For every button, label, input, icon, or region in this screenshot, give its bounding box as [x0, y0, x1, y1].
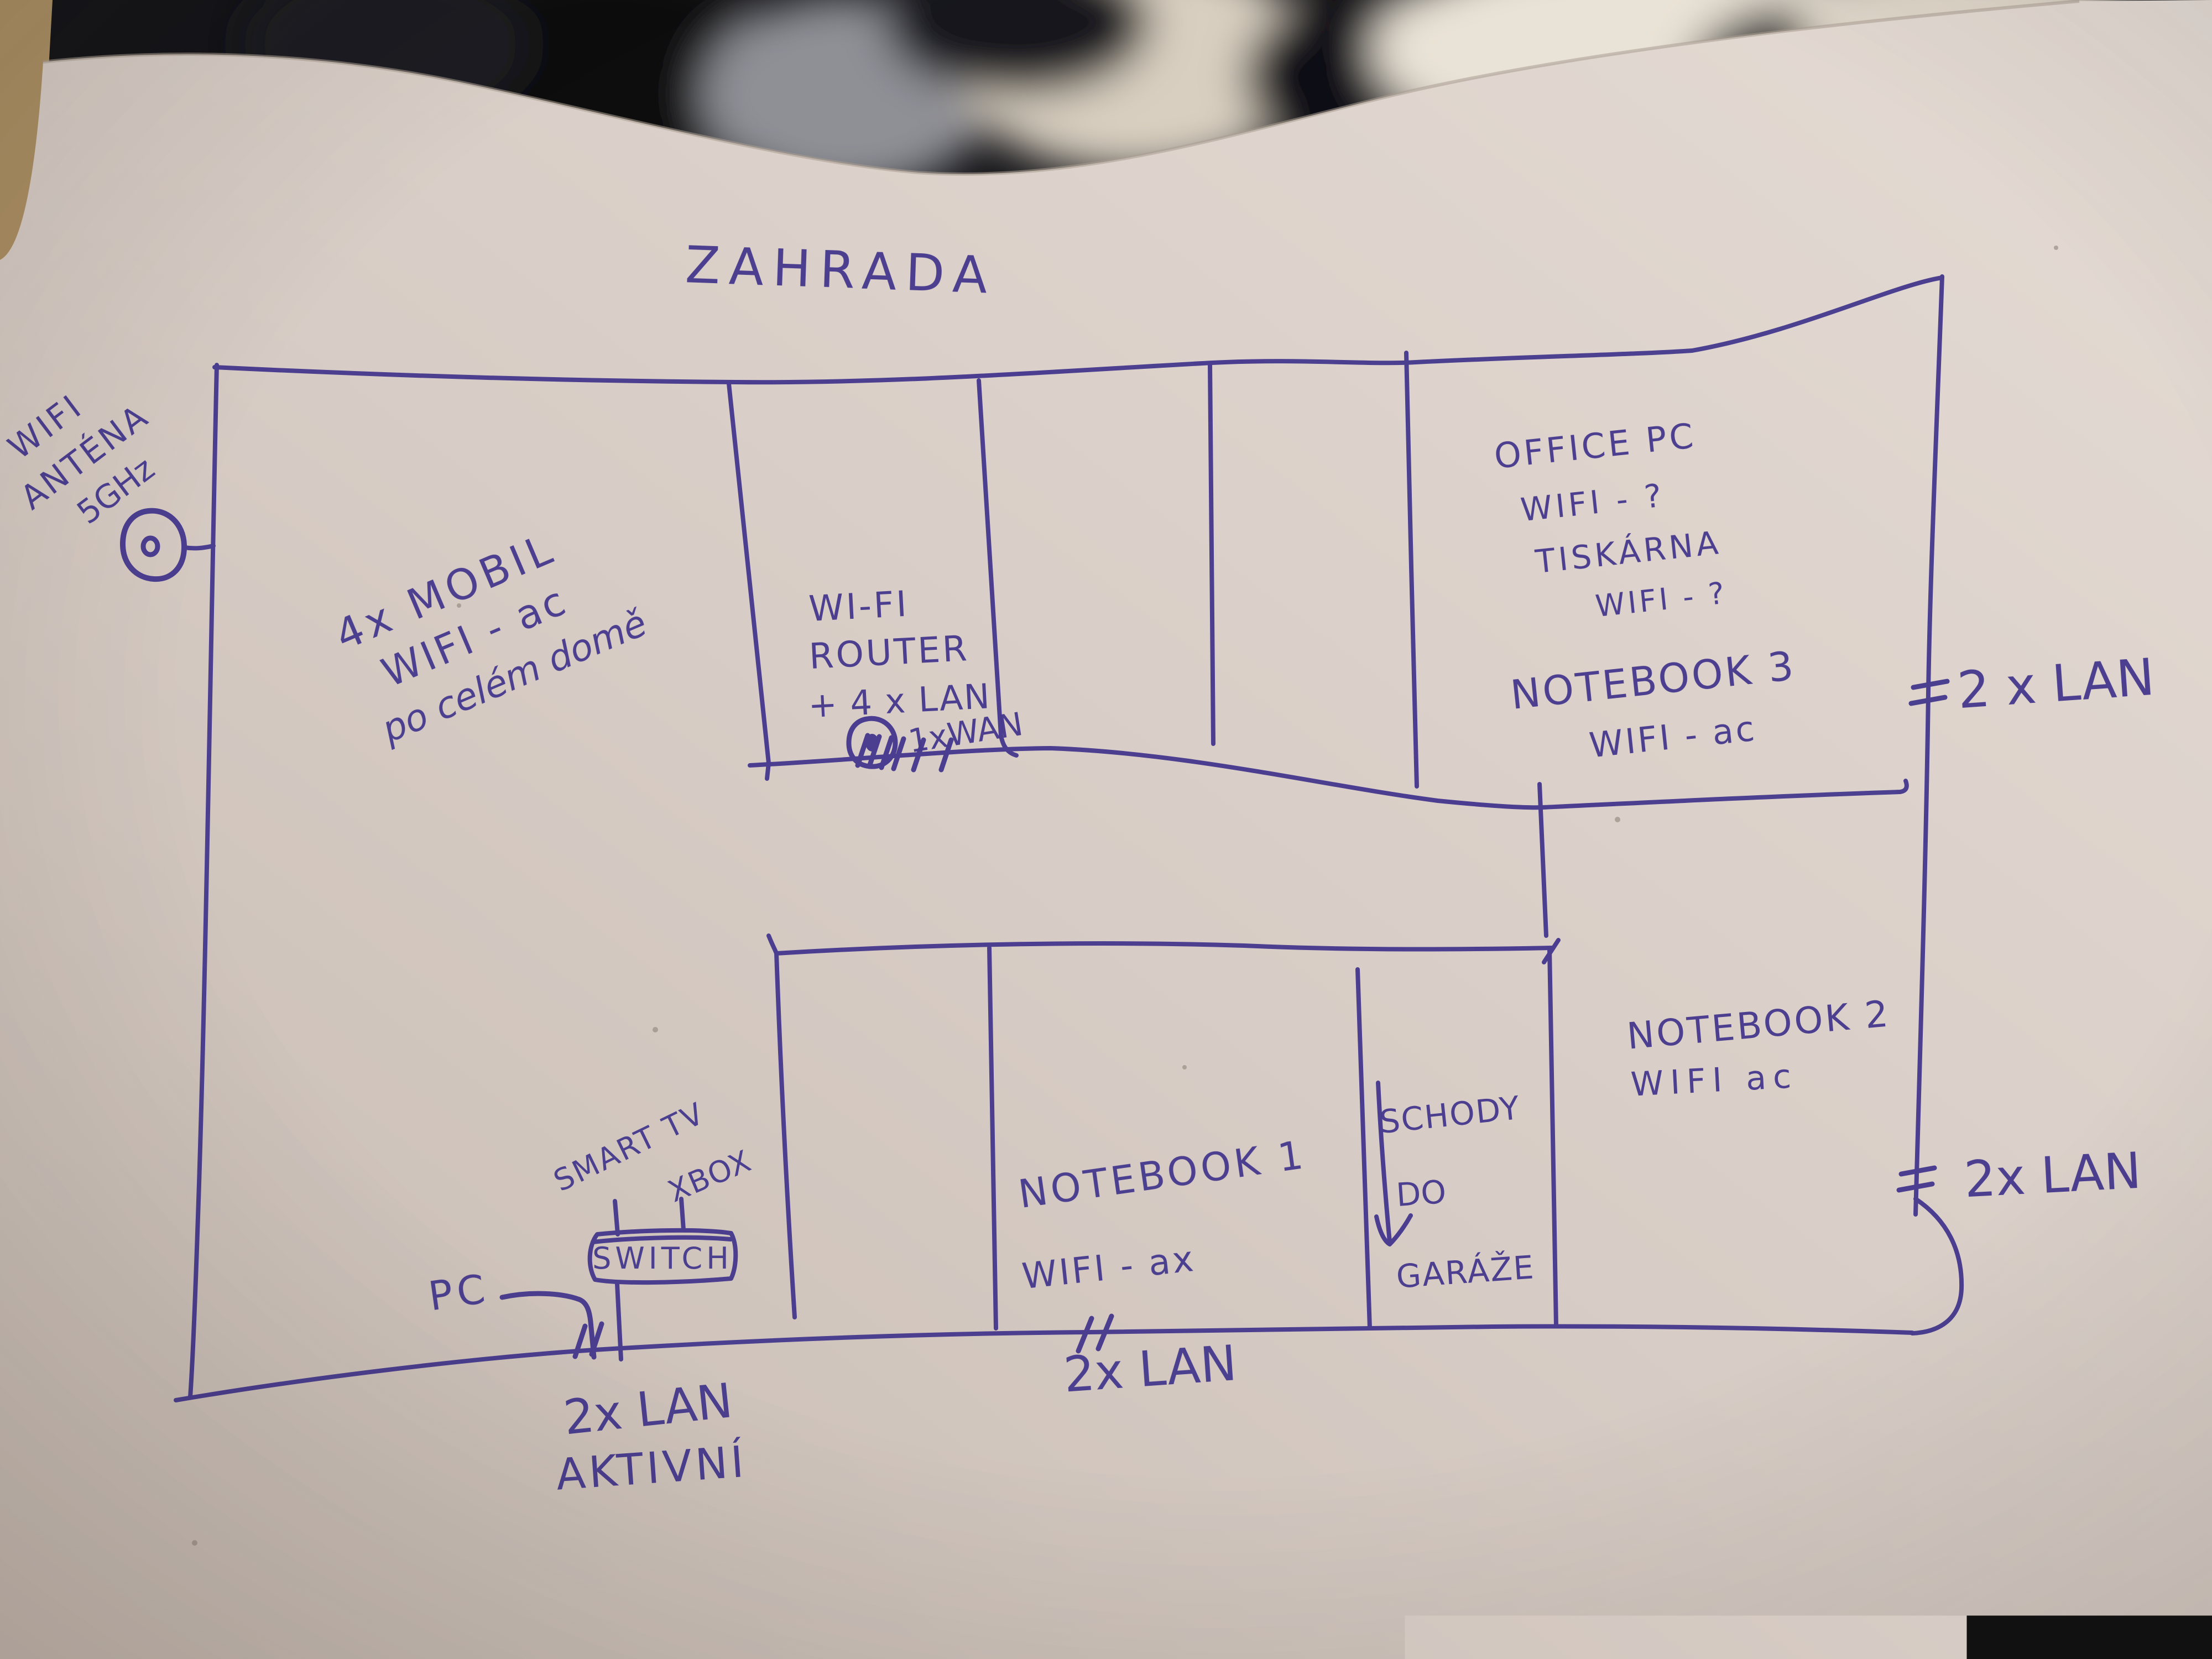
sketch-canvas: ZAHRADA WIFI ANTÉNA 5GHz 4x MOBIL WIFI -… [0, 0, 2212, 1659]
photo-vignette [0, 0, 2212, 1659]
photo-stage: ZAHRADA WIFI ANTÉNA 5GHz 4x MOBIL WIFI -… [0, 0, 2212, 1659]
